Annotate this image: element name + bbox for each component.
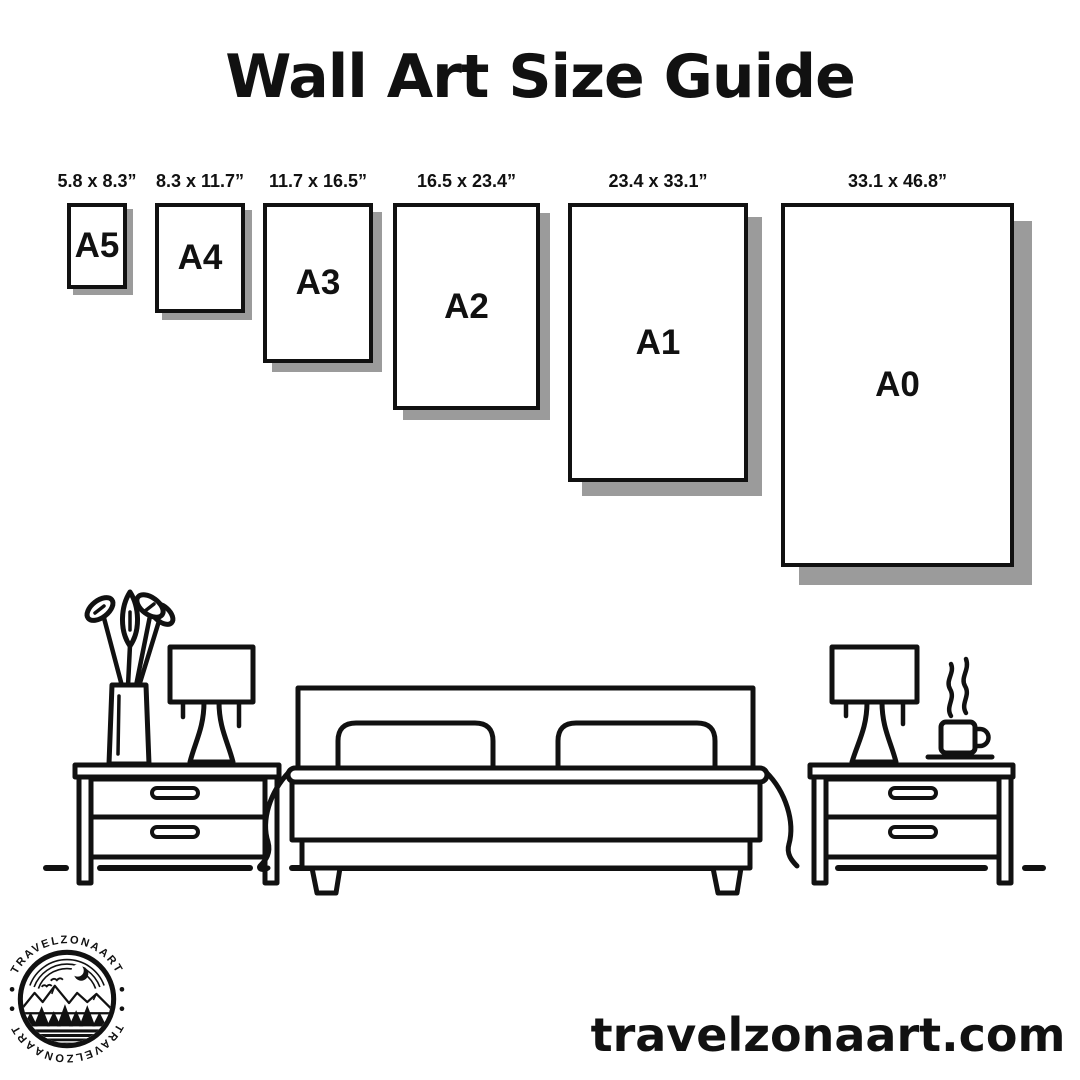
wall-art-size-guide-poster: Wall Art Size Guide 5.8 x 8.3” A5 8.3 x …	[0, 0, 1080, 1080]
coffee-cup-icon	[928, 659, 992, 757]
bed-foot	[713, 868, 741, 893]
paper-label-a3: A3	[296, 263, 341, 303]
paper-label-a5: A5	[75, 226, 120, 266]
potted-plant-icon	[83, 590, 177, 764]
drawer-handle	[890, 827, 936, 837]
size-item-a4: 8.3 x 11.7” A4	[155, 166, 245, 313]
pillow	[558, 723, 715, 770]
drawer-handle	[890, 788, 936, 798]
bedroom-illustration	[0, 580, 1080, 900]
paper-label-a2: A2	[444, 287, 489, 327]
table-lamp-icon-left	[170, 647, 253, 762]
dimension-label-a5: 5.8 x 8.3”	[57, 166, 136, 196]
steam	[964, 659, 967, 713]
paper-label-a1: A1	[636, 323, 681, 363]
bed-base	[302, 840, 750, 868]
paper-label-a4: A4	[178, 238, 223, 278]
drawer-handle	[152, 827, 198, 837]
bed-foot	[312, 868, 340, 893]
size-item-a0: 33.1 x 46.8” A0	[781, 166, 1014, 567]
paper-a2: A2	[393, 203, 540, 410]
size-item-a5: 5.8 x 8.3” A5	[67, 166, 127, 289]
paper-label-a0: A0	[875, 365, 920, 405]
page-title: Wall Art Size Guide	[0, 42, 1080, 112]
pillow	[338, 723, 493, 770]
table-lamp-icon-right	[832, 647, 917, 762]
size-item-a2: 16.5 x 23.4” A2	[393, 166, 540, 410]
mattress	[292, 782, 760, 840]
dimension-label-a3: 11.7 x 16.5”	[269, 166, 367, 196]
paper-a5: A5	[67, 203, 127, 289]
size-item-a1: 23.4 x 33.1” A1	[568, 166, 748, 482]
paper-a4: A4	[155, 203, 245, 313]
paper-a1: A1	[568, 203, 748, 482]
dimension-label-a2: 16.5 x 23.4”	[417, 166, 516, 196]
blanket-drape	[766, 772, 797, 866]
drawer-handle	[152, 788, 198, 798]
paper-a3: A3	[263, 203, 373, 363]
website-url: travelzonaart.com	[548, 1008, 1080, 1062]
bed-icon	[260, 688, 797, 893]
cup-body	[941, 722, 975, 753]
paper-a0: A0	[781, 203, 1014, 567]
dimension-label-a0: 33.1 x 46.8”	[848, 166, 947, 196]
size-item-a3: 11.7 x 16.5” A3	[263, 166, 373, 363]
steam	[949, 664, 952, 716]
dimension-label-a4: 8.3 x 11.7”	[156, 166, 244, 196]
brand-logo: TRAVELZONAART TRAVELZONAART	[0, 928, 138, 1070]
dimension-label-a1: 23.4 x 33.1”	[608, 166, 707, 196]
